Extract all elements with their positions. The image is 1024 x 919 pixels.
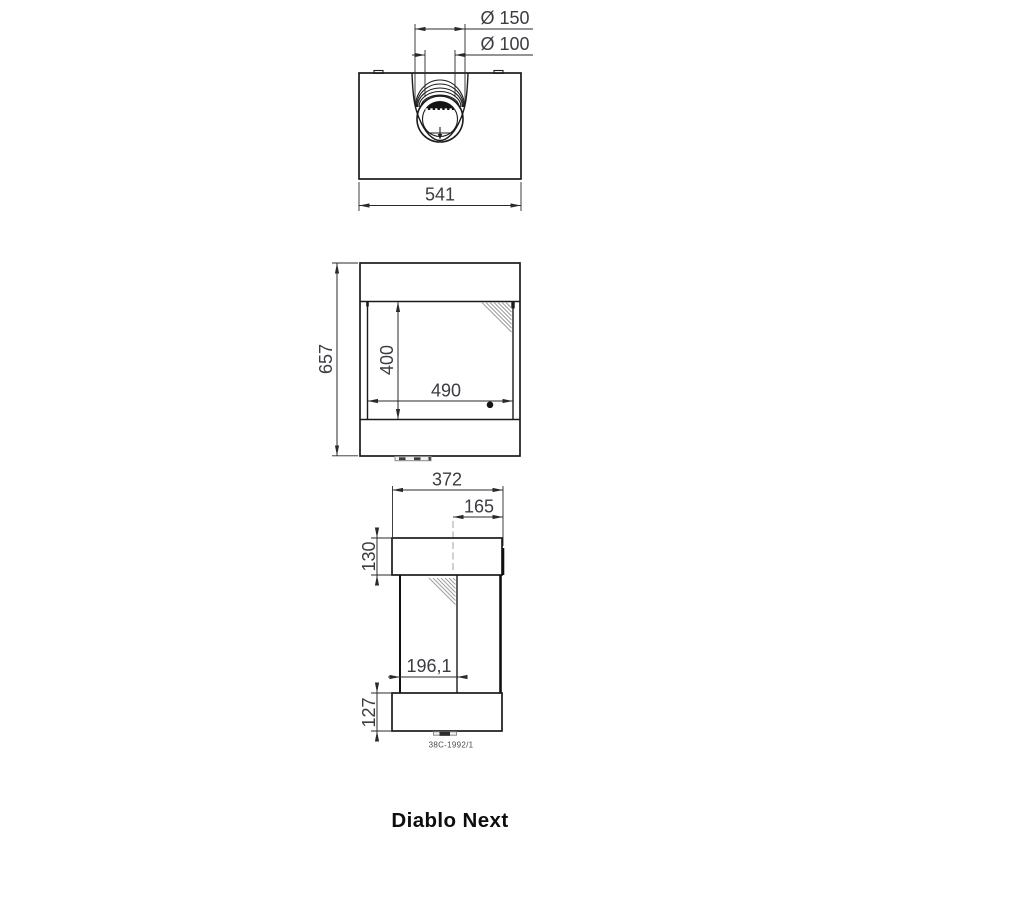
top-view: Ø 150 Ø 100 541 <box>359 8 533 211</box>
dim-label-top-section-height: 130 <box>359 541 379 571</box>
dim-flue-offset: 165 <box>453 497 503 518</box>
dim-overall-height: 657 <box>316 263 358 456</box>
dim-label-glass-width: 490 <box>431 381 461 401</box>
page-title: Diablo Next <box>391 809 508 832</box>
dim-flue-outer: Ø 150 <box>415 8 533 105</box>
front-glass-hatching <box>482 303 512 333</box>
technical-drawing-page: Ø 150 Ø 100 541 <box>0 0 1024 919</box>
dim-label-overall-height: 657 <box>316 344 336 374</box>
dim-label-flue-offset: 165 <box>464 497 494 517</box>
flue-collar <box>412 73 468 142</box>
front-bottom-latch <box>395 457 431 461</box>
dim-label-flue-outer: Ø 150 <box>480 8 529 28</box>
drawing-canvas: Ø 150 Ø 100 541 <box>0 0 1024 919</box>
dim-flue-inner: Ø 100 <box>412 34 533 97</box>
dim-label-glass-height: 400 <box>377 345 397 375</box>
dim-label-base-height: 127 <box>359 697 379 727</box>
door-handle <box>487 402 494 409</box>
dim-top-section-height: 130 <box>359 529 392 584</box>
side-glass-hatching <box>429 578 456 605</box>
dim-label-overall-depth: 372 <box>432 470 462 490</box>
top-tab-left <box>374 71 383 74</box>
dim-glass-height: 400 <box>377 302 398 420</box>
base-latch <box>434 732 457 736</box>
dim-overall-width: 541 <box>359 182 521 211</box>
top-view-body <box>359 73 521 179</box>
drawing-number: 38C-1992/1 <box>429 741 474 750</box>
dim-label-mid-section-depth: 196,1 <box>406 656 451 676</box>
dim-base-height: 127 <box>359 684 392 740</box>
front-view: 657 400 490 <box>316 263 520 461</box>
top-tab-right <box>494 71 503 74</box>
dim-glass-width: 490 <box>368 381 514 402</box>
side-base-section <box>392 693 502 731</box>
dim-label-overall-width: 541 <box>425 185 455 205</box>
dim-label-flue-inner: Ø 100 <box>480 34 529 54</box>
side-top-section <box>392 538 502 575</box>
side-view: 372 165 130 <box>359 470 503 750</box>
